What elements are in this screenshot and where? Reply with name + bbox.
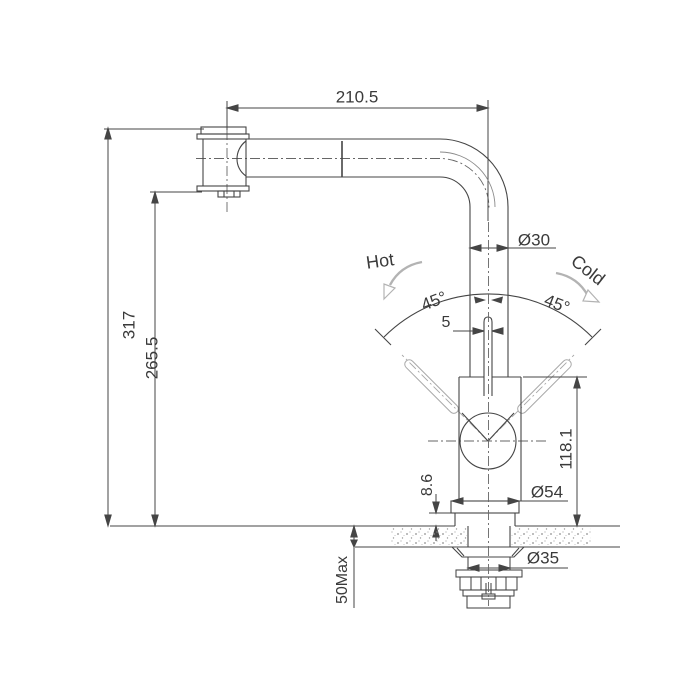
hot-label: Hot [365, 250, 395, 272]
dim-counter-thickness-label: 50Max [335, 556, 351, 604]
dim-spout-reach-label: 210.5 [336, 89, 379, 106]
dim-body-height [523, 377, 587, 526]
dim-shank-diameter-label: Ø35 [527, 550, 559, 567]
spout-head [197, 127, 249, 197]
dim-flange-diameter-label: Ø54 [531, 484, 563, 501]
dim-body-height-label: 118.1 [558, 428, 575, 469]
arc-arrow-left [474, 297, 486, 304]
dim-pipe-diameter-label: Ø30 [518, 232, 550, 249]
centerlines [196, 112, 548, 441]
washer [452, 547, 524, 557]
arc-arrow-right [491, 297, 503, 304]
dim-handle-width-label: 5 [442, 315, 451, 331]
dim-flange-lip-height-label: 8.6 [420, 474, 436, 496]
handle-lever [484, 317, 492, 396]
technical-drawing-canvas: 210.5 317 265.5 Ø30 Hot Cold 45° 45° 5 1… [0, 0, 700, 700]
base-flange [451, 501, 519, 526]
dim-handle-width [453, 328, 503, 334]
dim-total-height-label: 317 [121, 311, 138, 339]
mounting-nut [456, 570, 522, 608]
dim-spout-reach [227, 100, 488, 221]
dim-spout-height-label: 265.5 [144, 337, 161, 380]
dim-counter-thickness [351, 526, 357, 608]
phantom-handle-left [402, 355, 488, 441]
countertop [110, 526, 620, 547]
aerator [218, 191, 240, 197]
